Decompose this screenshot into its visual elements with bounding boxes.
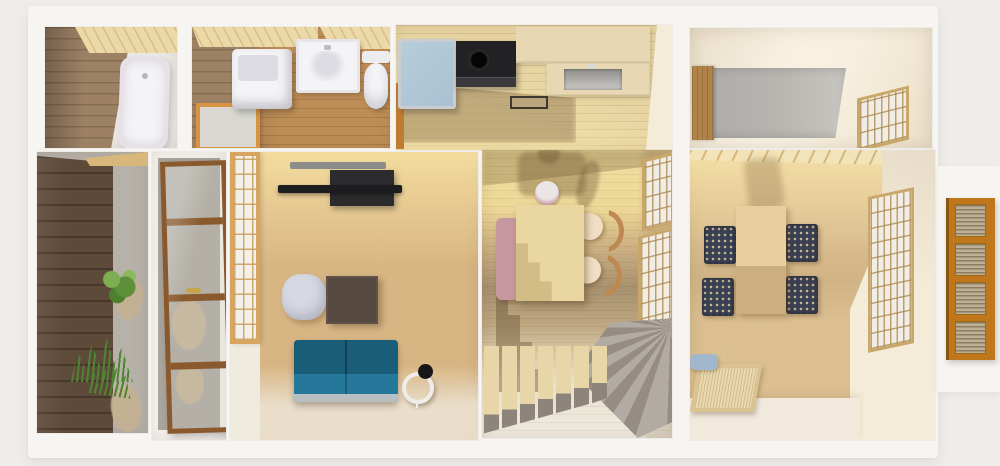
stove-front-panel: [456, 77, 516, 87]
toilet: [364, 63, 388, 109]
sink-basin: [308, 51, 346, 81]
kitchen-counter-upper: [516, 27, 650, 63]
coffee-table: [326, 276, 378, 324]
exterior-door-wing: [938, 166, 1000, 392]
washroom-window: [196, 103, 260, 148]
room-kitchen: [396, 25, 672, 150]
stove-burner: [468, 49, 490, 71]
louvered-entry-door: [946, 198, 995, 360]
louver-panel: [955, 204, 986, 237]
bathtub: [117, 56, 170, 148]
dining-lattice-window-upper: [642, 152, 672, 232]
tv-shelf: [290, 162, 386, 169]
ring-floor-lamp: [402, 364, 438, 408]
floor-cushion: [786, 224, 818, 262]
kitchen-faucet: [588, 64, 596, 69]
sink-faucet: [324, 45, 331, 50]
low-table: [736, 206, 786, 314]
sofa-seat: [294, 374, 398, 394]
tv-screen: [278, 185, 402, 193]
room-washroom: [192, 27, 390, 148]
room-living: [230, 152, 478, 440]
utility-wood-door: [692, 66, 714, 140]
louver-panel: [955, 321, 986, 354]
room-entryway: [152, 152, 226, 440]
dining-table: [516, 205, 584, 301]
sofa-backrest: [294, 340, 398, 374]
entry-glass-door: [160, 160, 226, 434]
stove: [456, 41, 516, 87]
shrub-plant: [99, 264, 141, 308]
dining-table-shadow-steps: [516, 243, 564, 301]
utility-concrete-floor: [694, 68, 846, 138]
blue-cushion: [690, 354, 718, 370]
floor-cushion: [702, 278, 734, 316]
room-utility: [690, 28, 932, 148]
lamp-shade-ball: [418, 364, 433, 379]
entrance-garden: [37, 152, 148, 433]
teal-sofa: [294, 340, 398, 402]
shoji-screen: [230, 152, 260, 344]
garden-eave: [85, 152, 148, 166]
stair-step: [484, 346, 499, 434]
toilet-tank: [362, 51, 390, 63]
pendant-lamp: [535, 181, 559, 205]
tatami-lattice-window: [868, 187, 914, 353]
washing-machine: [232, 49, 292, 109]
living-left-wall: [230, 342, 260, 440]
hanging-lamp-shadow: [743, 156, 786, 211]
door-glass-reflection: [165, 165, 226, 428]
room-bathroom: [45, 27, 177, 148]
floor-cushion: [786, 276, 818, 314]
woven-bench: [690, 364, 762, 412]
pouf: [282, 274, 326, 320]
louver-panel: [955, 243, 986, 276]
refrigerator: [398, 39, 456, 109]
bathroom-ceiling-strip: [75, 27, 177, 53]
louver-panel: [955, 282, 986, 315]
room-dining: [482, 150, 672, 438]
stair-step: [502, 346, 517, 434]
sofa-base: [294, 394, 398, 402]
floorplan-render: [0, 0, 1000, 466]
low-table-shadow: [736, 266, 786, 314]
room-tatami-lounge: [690, 150, 935, 440]
lamp-stem: [416, 400, 418, 408]
kitchen-sink: [564, 69, 622, 90]
washing-machine-lid: [238, 55, 278, 81]
floor-cushion: [704, 226, 736, 264]
vanity-sink: [296, 39, 360, 93]
bathtub-drain: [142, 73, 148, 79]
kitchen-floor-tray: [510, 96, 548, 109]
shoji-grid-pane: [234, 156, 256, 340]
